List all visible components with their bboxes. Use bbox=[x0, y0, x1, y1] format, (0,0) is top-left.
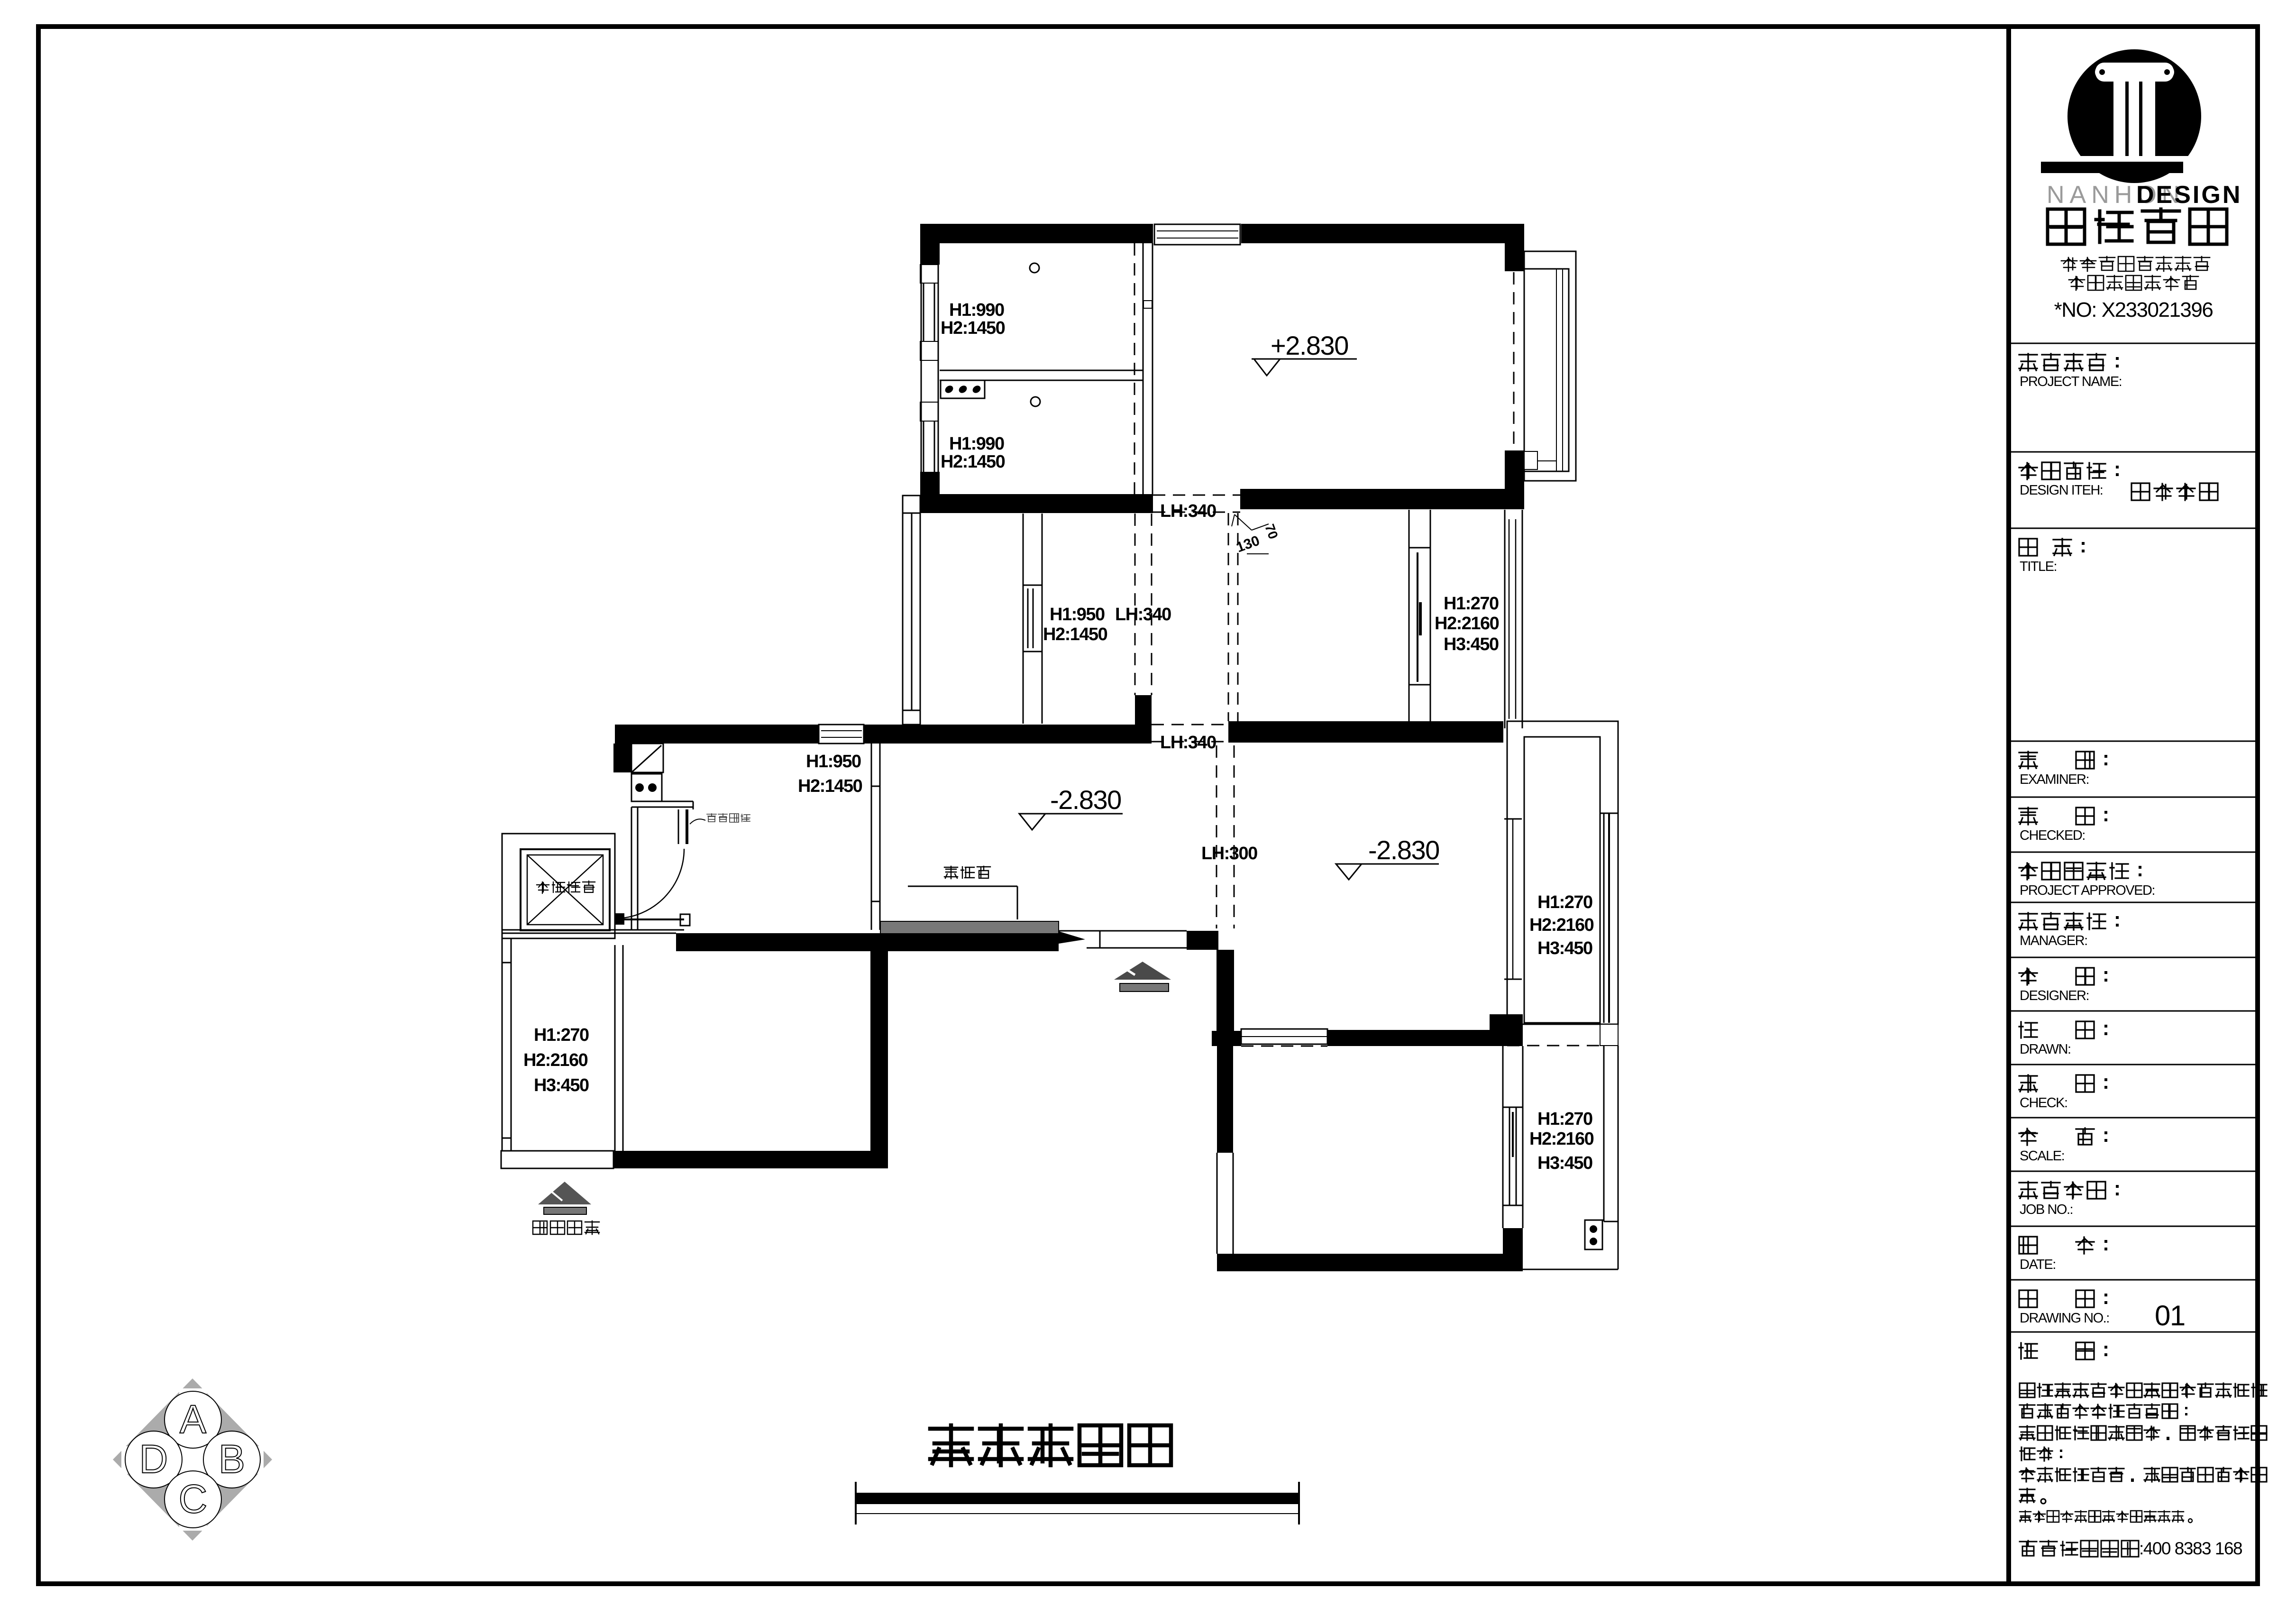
svg-text:H2:1450: H2:1450 bbox=[941, 452, 1005, 472]
svg-text:DESIGN: DESIGN bbox=[2136, 181, 2242, 209]
svg-text:01: 01 bbox=[2155, 1300, 2185, 1332]
svg-text:MANAGER:: MANAGER: bbox=[2020, 933, 2087, 948]
svg-text:LH:300: LH:300 bbox=[1201, 844, 1257, 863]
svg-text:H2:2160: H2:2160 bbox=[523, 1050, 588, 1070]
svg-text:H1:990: H1:990 bbox=[949, 300, 1004, 320]
svg-text:+2.830: +2.830 bbox=[1271, 331, 1348, 360]
svg-text:H1:270: H1:270 bbox=[534, 1025, 589, 1045]
svg-text:PROJECT NAME:: PROJECT NAME: bbox=[2020, 374, 2122, 389]
svg-text:-2.830: -2.830 bbox=[1050, 785, 1121, 815]
svg-text:CHECK:: CHECK: bbox=[2020, 1095, 2067, 1111]
svg-text:DRAWN:: DRAWN: bbox=[2020, 1042, 2071, 1057]
svg-text:PROJECT APPROVED:: PROJECT APPROVED: bbox=[2020, 883, 2155, 898]
svg-text:H3:450: H3:450 bbox=[1537, 1153, 1592, 1173]
svg-text:A: A bbox=[180, 1397, 206, 1442]
svg-text:H2:1450: H2:1450 bbox=[798, 776, 862, 796]
svg-text::400 8383 168: :400 8383 168 bbox=[2139, 1539, 2242, 1558]
svg-text:H1:270: H1:270 bbox=[1444, 594, 1499, 614]
svg-text:H2:1450: H2:1450 bbox=[941, 318, 1005, 338]
svg-text:-2.830: -2.830 bbox=[1368, 835, 1439, 865]
svg-text:SCALE:: SCALE: bbox=[2020, 1148, 2064, 1164]
svg-text:H2:2160: H2:2160 bbox=[1529, 915, 1594, 935]
svg-text:H2:2160: H2:2160 bbox=[1435, 614, 1499, 634]
svg-text:H3:450: H3:450 bbox=[1537, 938, 1592, 958]
svg-text:H1:990: H1:990 bbox=[949, 434, 1004, 454]
svg-text:H3:450: H3:450 bbox=[1444, 634, 1499, 654]
svg-text:*NO: X233021396: *NO: X233021396 bbox=[2054, 298, 2213, 321]
svg-text:H1:270: H1:270 bbox=[1537, 1109, 1592, 1129]
svg-text:TITLE:: TITLE: bbox=[2020, 559, 2057, 574]
svg-text:H2:2160: H2:2160 bbox=[1529, 1129, 1594, 1149]
svg-text:C: C bbox=[179, 1477, 208, 1521]
svg-text:DATE:: DATE: bbox=[2020, 1257, 2056, 1272]
svg-text:LH:340: LH:340 bbox=[1160, 733, 1216, 753]
svg-text:B: B bbox=[219, 1437, 245, 1481]
svg-text:EXAMINER:: EXAMINER: bbox=[2020, 772, 2089, 787]
svg-text:H1:950: H1:950 bbox=[1050, 605, 1105, 624]
svg-text:H1:950: H1:950 bbox=[806, 752, 861, 771]
svg-text:DESIGN ITEH:: DESIGN ITEH: bbox=[2020, 483, 2103, 498]
svg-text:CHECKED:: CHECKED: bbox=[2020, 828, 2085, 843]
svg-text:DRAWING NO.:: DRAWING NO.: bbox=[2020, 1311, 2109, 1326]
svg-text:H3:450: H3:450 bbox=[534, 1075, 589, 1095]
svg-text:DESIGNER:: DESIGNER: bbox=[2020, 988, 2089, 1003]
svg-text:JOB NO.:: JOB NO.: bbox=[2020, 1202, 2073, 1217]
svg-text:LH:340: LH:340 bbox=[1160, 501, 1216, 521]
svg-text:H2:1450: H2:1450 bbox=[1043, 624, 1107, 644]
svg-text:LH:340: LH:340 bbox=[1115, 605, 1171, 624]
svg-text:D: D bbox=[139, 1437, 168, 1481]
svg-text:H1:270: H1:270 bbox=[1537, 892, 1592, 912]
